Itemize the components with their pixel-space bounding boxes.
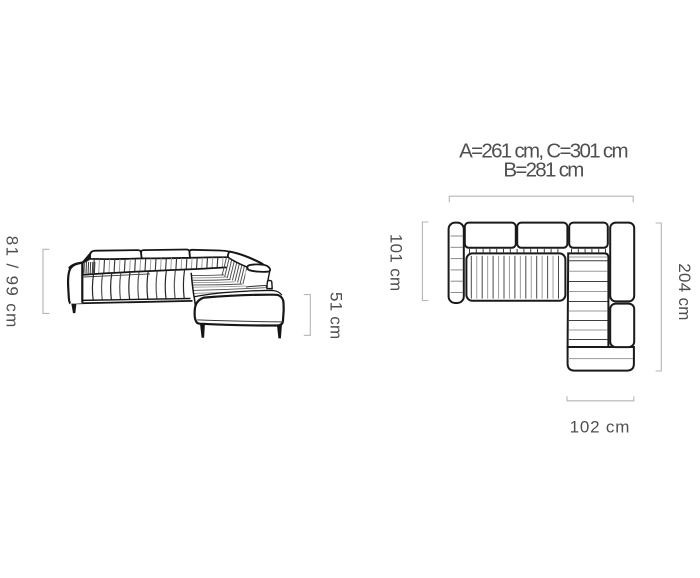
svg-text:101 cm: 101 cm — [387, 234, 406, 292]
svg-text:204 cm: 204 cm — [675, 263, 694, 321]
svg-text:51 cm: 51 cm — [326, 292, 345, 339]
svg-text:102 cm: 102 cm — [570, 418, 631, 437]
svg-text:81 / 99 cm: 81 / 99 cm — [2, 236, 21, 329]
svg-text:B=281 cm: B=281 cm — [503, 159, 583, 182]
